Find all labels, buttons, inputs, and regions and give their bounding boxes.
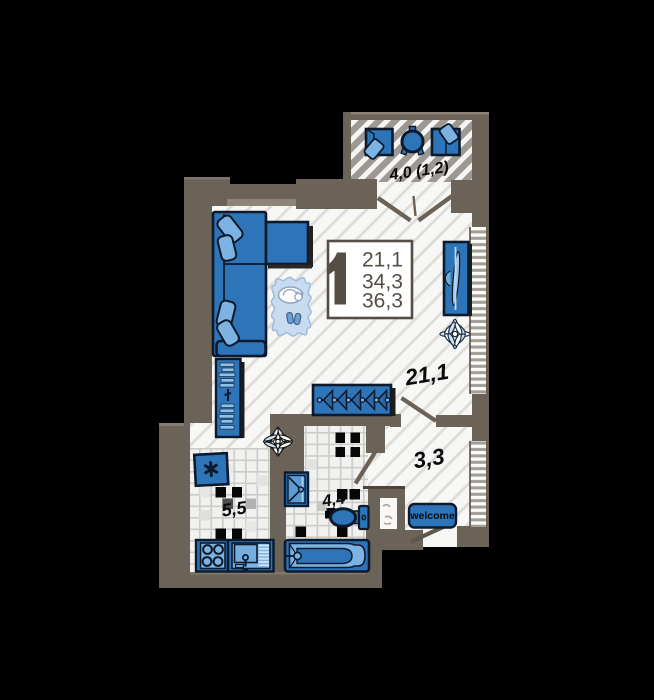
svg-text:36,3: 36,3 xyxy=(362,290,403,313)
svg-text:21,1: 21,1 xyxy=(362,249,403,272)
svg-text:welcome: welcome xyxy=(409,510,455,522)
svg-text:5,5: 5,5 xyxy=(220,497,249,520)
svg-text:4,4: 4,4 xyxy=(320,489,346,511)
svg-text:3,3: 3,3 xyxy=(412,444,447,474)
